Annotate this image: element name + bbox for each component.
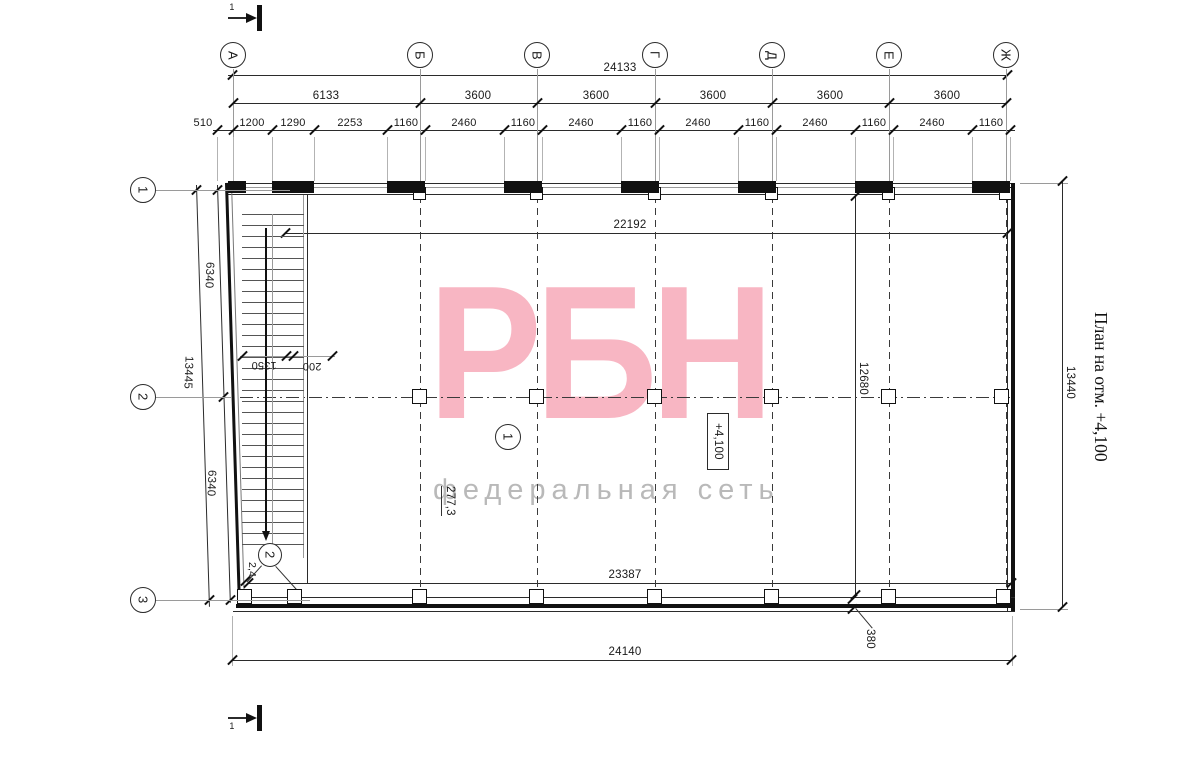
- dim-axis-span: 3600: [917, 90, 977, 102]
- dim-detail: 2460: [676, 117, 720, 129]
- dim-detail: 1290: [271, 117, 315, 129]
- column-bottom: [412, 589, 427, 604]
- witness-line: [893, 137, 894, 181]
- dim-detail: 1160: [735, 117, 779, 129]
- axis-number: 2: [136, 393, 151, 400]
- axis-bubble-side: 1: [130, 177, 156, 203]
- node-2-bubble: 2: [258, 543, 282, 567]
- dim-detail: 1160: [384, 117, 428, 129]
- witness-line: [621, 137, 622, 181]
- column-bottom: [529, 589, 544, 604]
- axis-letter: Г: [648, 51, 663, 58]
- witness-line: [272, 137, 273, 181]
- column-bottom: [764, 589, 779, 604]
- witness-line: [314, 137, 315, 181]
- column-middle: [647, 389, 662, 404]
- axis-stub: [156, 190, 290, 191]
- column-middle: [994, 389, 1009, 404]
- axis-letter: Б: [413, 51, 428, 60]
- dim-axis-span: 3600: [448, 90, 508, 102]
- dim-bottom-total: 24140: [590, 646, 660, 658]
- column-bottom: [647, 589, 662, 604]
- axis-stub: [156, 397, 232, 398]
- dim-axis-span: 3600: [566, 90, 626, 102]
- witness-line: [855, 137, 856, 181]
- level-mark-box: +4,100: [707, 413, 729, 470]
- wall-pier: [972, 181, 1010, 193]
- axis-bubble-side: 3: [130, 587, 156, 613]
- wall-pier: [387, 181, 425, 193]
- stair-treads: [242, 214, 304, 546]
- axis-bubble-side: 2: [130, 384, 156, 410]
- stair-direction-arrow: [262, 531, 270, 541]
- dim-interior-height: 12680: [857, 362, 869, 395]
- axis-bubble-top: Е: [876, 42, 902, 68]
- axis-letter: Е: [882, 51, 897, 60]
- axis-bubble-top: Ж: [993, 42, 1019, 68]
- column-bottom: [237, 589, 252, 604]
- axis-stub: [156, 600, 310, 601]
- dim-detail: 510: [181, 117, 225, 129]
- column-bottom: [881, 589, 896, 604]
- dim-right-total: 13440: [1064, 366, 1076, 399]
- area-label: 277,3: [441, 486, 456, 516]
- axis-bubble-top: А: [220, 42, 246, 68]
- dim-stair-flight: 1350: [242, 359, 286, 371]
- witness-line: [738, 137, 739, 181]
- axis-letter: Д: [765, 51, 780, 60]
- column-middle: [764, 389, 779, 404]
- floor-plan-drawing: РБН федеральная сеть 1 1 24133 22192 233…: [0, 0, 1200, 782]
- wall-pier: [272, 181, 314, 193]
- axis-bubble-top: Г: [642, 42, 668, 68]
- wall-pier: [738, 181, 776, 193]
- wall-pier: [621, 181, 659, 193]
- section-label: 1: [226, 2, 238, 12]
- wall-pier: [228, 181, 246, 193]
- axis-number: 3: [136, 596, 151, 603]
- column-middle: [881, 389, 896, 404]
- dim-detail: 1160: [852, 117, 896, 129]
- axis-bubble-top: Б: [407, 42, 433, 68]
- dim-axis-span: 3600: [683, 90, 743, 102]
- witness-line: [233, 137, 234, 181]
- axis-bubble-top: Д: [759, 42, 785, 68]
- node-1-bubble: 1: [495, 424, 521, 450]
- witness-line: [776, 137, 777, 181]
- axis-bubble-top: В: [524, 42, 550, 68]
- axis-letter: В: [530, 51, 545, 60]
- witness-line: [425, 137, 426, 181]
- wall-pier: [504, 181, 542, 193]
- witness-line: [542, 137, 543, 181]
- section-label: 1: [226, 721, 238, 731]
- dim-left-total: 13445: [181, 356, 194, 389]
- column-middle: [529, 389, 544, 404]
- witness-line: [1010, 137, 1011, 181]
- dim-detail: 1160: [618, 117, 662, 129]
- wall-pier: [855, 181, 893, 193]
- witness-line: [504, 137, 505, 181]
- dim-detail: 2460: [442, 117, 486, 129]
- dim-wall-thickness: 380: [864, 629, 876, 649]
- witness-line: [387, 137, 388, 181]
- dim-detail: 2460: [910, 117, 954, 129]
- dim-detail: 1160: [501, 117, 545, 129]
- dim-detail: 1200: [230, 117, 274, 129]
- axis-number: 1: [136, 186, 151, 193]
- dim-left-2: 6340: [205, 470, 218, 497]
- column-bottom: [287, 589, 302, 604]
- stair-note: 2,4: [246, 562, 258, 577]
- witness-line: [659, 137, 660, 181]
- dim-interior-bottom: 23387: [590, 569, 660, 581]
- dim-left-1: 6340: [203, 262, 216, 289]
- axis-letter: Ж: [999, 49, 1014, 61]
- column-middle: [412, 389, 427, 404]
- drawing-title: План на отм. +4,100: [1090, 312, 1111, 462]
- dim-axis-span: 3600: [800, 90, 860, 102]
- column-bottom: [996, 589, 1011, 604]
- dim-stair-gap: 200: [297, 360, 327, 372]
- dim-detail: 2460: [559, 117, 603, 129]
- dim-axis-span: 6133: [296, 90, 356, 102]
- witness-line: [217, 137, 218, 181]
- dim-detail: 1160: [969, 117, 1013, 129]
- witness-line: [972, 137, 973, 181]
- dim-detail: 2253: [328, 117, 372, 129]
- dim-detail: 2460: [793, 117, 837, 129]
- watermark-tagline: федеральная сеть: [433, 474, 780, 507]
- axis-letter: А: [226, 51, 241, 60]
